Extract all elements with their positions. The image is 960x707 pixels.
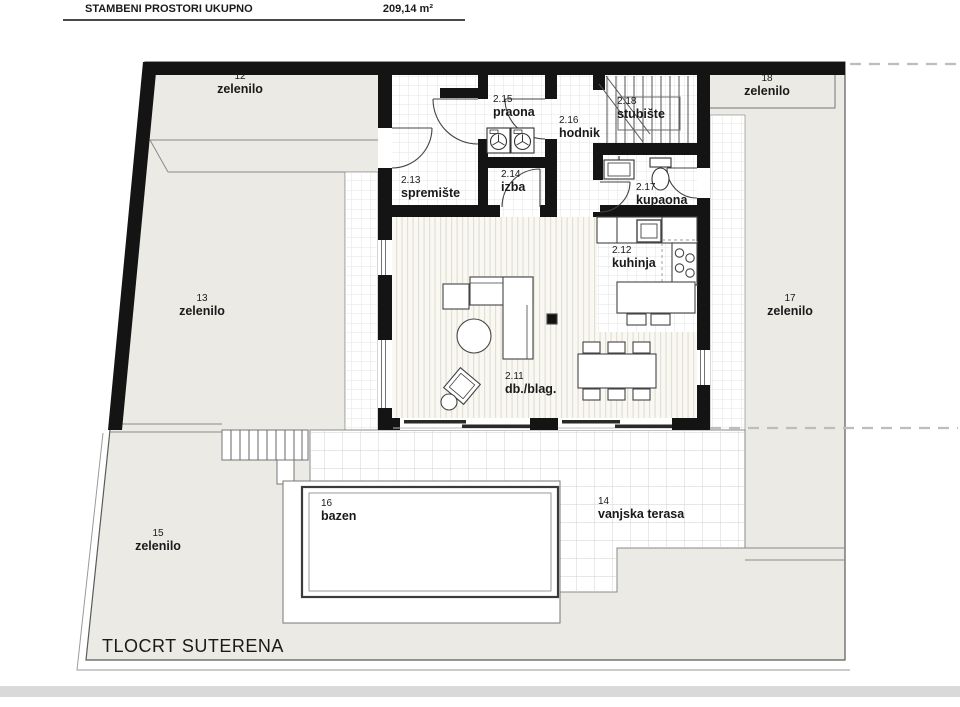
room-name: hodnik [559,126,600,140]
dining-set-icon [578,342,656,400]
room-number: 2.11 [505,371,556,382]
label-room-praona: 2.15 praona [493,94,535,119]
room-name: kuhinja [612,256,656,270]
label-zelenilo-17: 17 zelenilo [740,293,840,318]
label-zelenilo-15: 15 zelenilo [108,528,208,553]
area-name: zelenilo [108,539,208,553]
header-total-area: 209,14 m² [383,3,433,15]
room-number: 2.18 [617,96,665,107]
washing-machine-icons [487,128,534,153]
area-number: 18 [717,73,817,84]
label-room-stubiste: 2.18 stubište [617,96,665,121]
room-number: 2.12 [612,245,656,256]
room-number: 2.13 [401,175,460,186]
label-room-izba: 2.14 izba [501,169,525,194]
header: STAMBENI PROSTORI UKUPNO 209,14 m² [63,0,465,21]
plan-title: TLOCRT SUTERENA [102,636,284,657]
bottom-separator [0,686,960,697]
label-zelenilo-13: 13 zelenilo [152,293,252,318]
room-number: 2.14 [501,169,525,180]
label-zelenilo-18: 18 zelenilo [717,73,817,98]
label-room-kuhinja: 2.12 kuhinja [612,245,656,270]
area-number: 16 [321,498,356,509]
room-name: stubište [617,107,665,121]
label-bazen: 16 bazen [321,498,356,523]
room-name: praona [493,105,535,119]
header-title: STAMBENI PROSTORI UKUPNO [85,3,253,15]
area-name: vanjska terasa [598,507,684,521]
label-vanjska-terasa: 14 vanjska terasa [598,496,684,521]
label-room-kupaona: 2.17 kupaona [636,182,687,207]
room-number: 2.17 [636,182,687,193]
label-room-dnevni: 2.11 db./blag. [505,371,556,396]
area-number: 14 [598,496,684,507]
area-name: zelenilo [152,304,252,318]
area-name: zelenilo [740,304,840,318]
room-number: 2.16 [559,115,600,126]
label-room-spremiste: 2.13 spremište [401,175,460,200]
room-number: 2.15 [493,94,535,105]
floor-plan-drawing [0,0,960,707]
room-name: kupaona [636,193,687,207]
area-number: 17 [740,293,840,304]
area-number: 13 [152,293,252,304]
floor-plan-page: STAMBENI PROSTORI UKUPNO 209,14 m² 12 ze… [0,0,960,707]
room-name: spremište [401,186,460,200]
label-room-hodnik: 2.16 hodnik [559,115,600,140]
room-name: izba [501,180,525,194]
area-name: zelenilo [190,82,290,96]
room-name: db./blag. [505,382,556,396]
area-name: zelenilo [717,84,817,98]
area-number: 15 [108,528,208,539]
label-zelenilo-12: 12 zelenilo [190,71,290,96]
area-number: 12 [190,71,290,82]
area-name: bazen [321,509,356,523]
